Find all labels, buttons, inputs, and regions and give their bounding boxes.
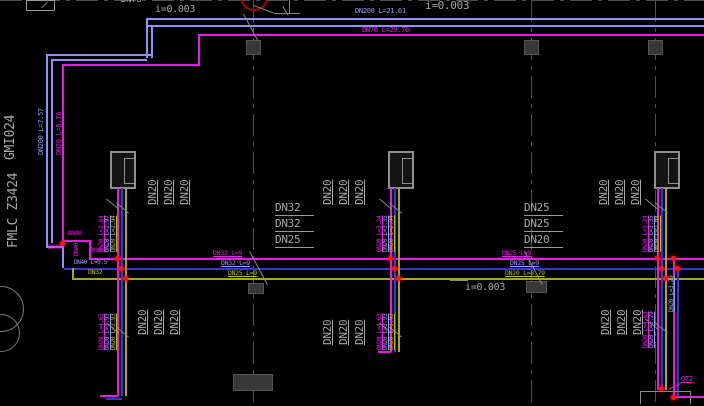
column <box>648 40 663 55</box>
column <box>248 283 264 294</box>
pipe-size-label: DN25 <box>524 202 563 216</box>
column <box>524 40 539 55</box>
riser-tag: DN20 <box>338 180 349 205</box>
blue-supply-jog <box>51 59 147 61</box>
fixture-symbol <box>110 151 136 189</box>
sink-outline <box>640 391 690 392</box>
slope-tick <box>450 280 468 281</box>
riser-tag: DN20 <box>169 310 180 335</box>
junction-marker <box>388 256 393 261</box>
pipe-size-label: DN70 L=6.76 <box>56 112 63 155</box>
slope-label: i=0.003 <box>465 283 505 293</box>
gridline-vertical-1 <box>253 0 254 406</box>
riser-tag: DN20 <box>179 180 190 205</box>
magenta-branch <box>62 240 90 242</box>
riser-tag: DN20 <box>598 180 609 205</box>
junction-marker <box>119 266 124 271</box>
riser-pipe-yellow <box>665 188 667 390</box>
wall-bracket <box>26 0 55 11</box>
pipe-size-label: DN32 <box>88 269 102 276</box>
yellow-distribution-main <box>72 278 704 280</box>
pipe-size-label: DN70 <box>121 0 141 5</box>
fixture-symbol <box>654 151 680 189</box>
pipe-size-label: DN200 L=7.57 <box>38 108 45 155</box>
riser-tag: DN20 <box>322 320 333 345</box>
gridline-horizontal-middle <box>0 0 704 1</box>
pipe-size-label: DN32 L=9 <box>221 260 250 267</box>
tag-leader-line <box>668 383 681 390</box>
pipe-size-label: DN200 L=21.61 <box>355 8 406 15</box>
drop-elbow-magenta <box>673 396 704 398</box>
riser-tag: DN20 <box>137 310 148 335</box>
riser-end-elbow <box>106 398 122 400</box>
riser-dim-label: DN20 L=3.93 <box>111 314 117 350</box>
junction-marker <box>115 256 120 261</box>
riser-dim-label: DN20 L=3.29 <box>649 312 655 348</box>
blue-supply-elbow <box>146 18 148 58</box>
junction-marker <box>655 256 660 261</box>
junction-marker <box>671 395 676 400</box>
riser-dim-label: DN20 L=2.94 <box>655 216 661 252</box>
blue-supply-main-pipe <box>148 18 704 20</box>
yellow-branch <box>72 268 74 278</box>
break-mark <box>283 6 289 15</box>
riser-dim-label: DN20 L=3.93 <box>389 314 395 350</box>
riser-pipe-blue <box>121 188 123 396</box>
blue-supply-main-pipe <box>148 25 704 27</box>
pipe-size-label: DN32 <box>275 202 314 216</box>
magenta-distribution-main <box>89 258 704 260</box>
riser-tag: DN20 <box>338 320 349 345</box>
riser-dim-label: DN20 L=2.94 <box>389 216 395 252</box>
magenta-elbow <box>198 34 200 64</box>
drop-pipe-blue <box>677 268 679 397</box>
riser-tag: DN20 <box>147 180 158 205</box>
riser-tag: DN20 <box>153 310 164 335</box>
riser-end-elbow <box>100 395 118 397</box>
blue-supply-jog <box>46 54 152 56</box>
column <box>233 374 273 391</box>
pipe-size-label: DN32 <box>275 218 314 232</box>
riser-tag: DN20 <box>614 180 625 205</box>
riser-tag: DN20 <box>322 180 333 205</box>
pipe-size-label: DN20 <box>524 234 563 248</box>
pipe-size-label: DN25 L=9 <box>502 250 531 257</box>
riser-end-elbow <box>378 351 391 353</box>
riser-tag: DN20 <box>630 180 641 205</box>
riser-pipe-magenta <box>117 188 119 396</box>
pipe-size-label: DN70 L=29.76 <box>362 27 409 34</box>
riser-tag: DN20 <box>163 180 174 205</box>
pipe-size-label: DN25 <box>524 218 563 232</box>
riser-dim-label: DN20 L=2.94 <box>111 216 117 252</box>
riser-pipe-blue <box>661 188 663 390</box>
riser-tag: DN20 <box>354 180 365 205</box>
blue-distribution-main <box>64 268 704 270</box>
leader-tick <box>289 0 290 14</box>
junction-marker <box>123 276 128 281</box>
fixture-symbol <box>388 151 414 189</box>
pipe-size-label: DN40 <box>48 245 61 251</box>
magenta-main-pipe <box>198 34 704 36</box>
junction-marker <box>659 266 664 271</box>
pipe-size-label: DN32 L=9 <box>213 250 242 257</box>
junction-marker <box>675 266 680 271</box>
pipe-size-label: DN40 <box>74 243 80 256</box>
blue-supply-riser <box>51 59 53 243</box>
cad-drawing-canvas[interactable]: DN70 i=0.003 DN200 L=21.61 i=0.003 DN70 … <box>0 0 704 406</box>
fixture-inner <box>402 158 413 184</box>
pipe-size-label: DN20 L=8.79 <box>505 270 545 277</box>
junction-marker <box>659 386 664 391</box>
pipe-size-label: DN25 <box>275 234 314 248</box>
riser-tag: DN20 <box>354 320 365 345</box>
blue-supply-drop <box>62 246 64 268</box>
riser-dim-label: DN20 L=3.29 <box>669 276 675 312</box>
pipe-size-label: DN40 <box>68 231 81 237</box>
slope-label: i=0.003 <box>155 5 195 15</box>
riser-tag: DN20 <box>600 310 611 335</box>
fixture-inner <box>124 158 135 184</box>
drawing-margin-text: FMLC Z3424 <box>7 173 20 248</box>
column <box>246 40 261 55</box>
sink-outline <box>690 391 691 404</box>
fixture-inner <box>668 158 679 184</box>
drawing-margin-text: GMI024 <box>4 115 17 160</box>
column <box>526 281 547 293</box>
riser-pipe-yellow <box>125 188 127 396</box>
pipe-size-label: DN25 L=9 <box>510 260 539 267</box>
pipe-size-label: DN40 L=0.5 <box>74 260 107 266</box>
junction-marker <box>671 256 676 261</box>
slope-label: i=0.003 <box>425 0 469 11</box>
junction-marker <box>392 266 397 271</box>
junction-marker <box>396 276 401 281</box>
blue-supply-riser <box>46 54 48 248</box>
riser-tag: DN20 <box>616 310 627 335</box>
magenta-jog <box>62 64 200 66</box>
sink-outline <box>640 391 641 404</box>
pipe-size-label: DN25 L=9 <box>228 270 257 277</box>
fixture-tag: QT2 <box>681 376 693 383</box>
